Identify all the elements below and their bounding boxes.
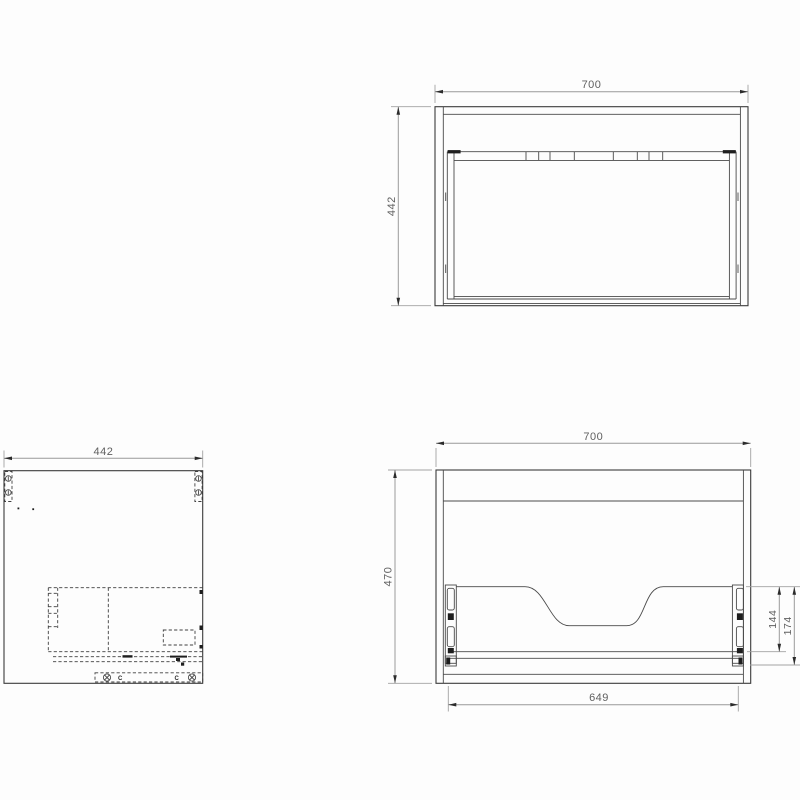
dim-label-side-depth: 442	[93, 446, 113, 458]
dim-rear-width: 700	[436, 431, 751, 467]
wall-bracket-right	[195, 472, 202, 502]
caster-symbol-left	[103, 674, 110, 681]
dim-top-width: 700	[435, 79, 748, 103]
cad-drawing: 700 442 442	[0, 0, 800, 800]
drawing-canvas: 700 442 442	[0, 0, 800, 800]
dim-label-top-depth: 442	[386, 196, 398, 216]
drawer-corner-bracket-right	[723, 150, 736, 153]
top-view-carcass-outline	[435, 107, 748, 306]
pilot-hole-mark	[18, 508, 20, 510]
dim-rear-bottom-width: 649	[448, 686, 738, 712]
dim-side-depth: 442	[4, 446, 203, 468]
dim-rear-height: 470	[383, 470, 433, 683]
dim-label-rear-height: 470	[383, 567, 395, 587]
caster-symbol-right	[188, 674, 195, 681]
runner-clip-mark	[170, 656, 187, 658]
dim-label-top-width: 700	[582, 79, 602, 91]
hidden-runner-block	[163, 630, 195, 645]
top-view: 700 442	[386, 79, 748, 306]
runner-clip-mark	[123, 655, 133, 657]
clip-label-left: C	[118, 676, 123, 682]
drawer-back-cutout	[456, 587, 732, 626]
side-view: 442	[4, 446, 203, 684]
drawer-back-joint-ticks	[526, 152, 663, 161]
runner-roller-marks	[446, 193, 738, 274]
dim-label-runner-height: 144	[767, 610, 779, 629]
dim-label-rear-bottom-width: 649	[589, 692, 609, 704]
wall-bracket-left	[5, 472, 12, 502]
pilot-hole-mark	[32, 508, 34, 510]
rear-view: 700 470 649 144	[383, 431, 800, 712]
top-view-drawer-box	[446, 150, 738, 299]
dim-top-depth: 442	[386, 107, 431, 306]
bottom-rail-strip: C C	[95, 673, 203, 682]
drawer-runner-right	[732, 585, 743, 666]
drawer-runner-left	[445, 585, 456, 666]
dim-label-rear-width: 700	[583, 431, 603, 443]
hidden-drawer-runner	[48, 588, 202, 666]
clip-label-right: C	[175, 676, 180, 682]
dim-label-runner-assembly-height: 174	[782, 616, 794, 635]
drawer-corner-bracket-left	[448, 150, 461, 153]
